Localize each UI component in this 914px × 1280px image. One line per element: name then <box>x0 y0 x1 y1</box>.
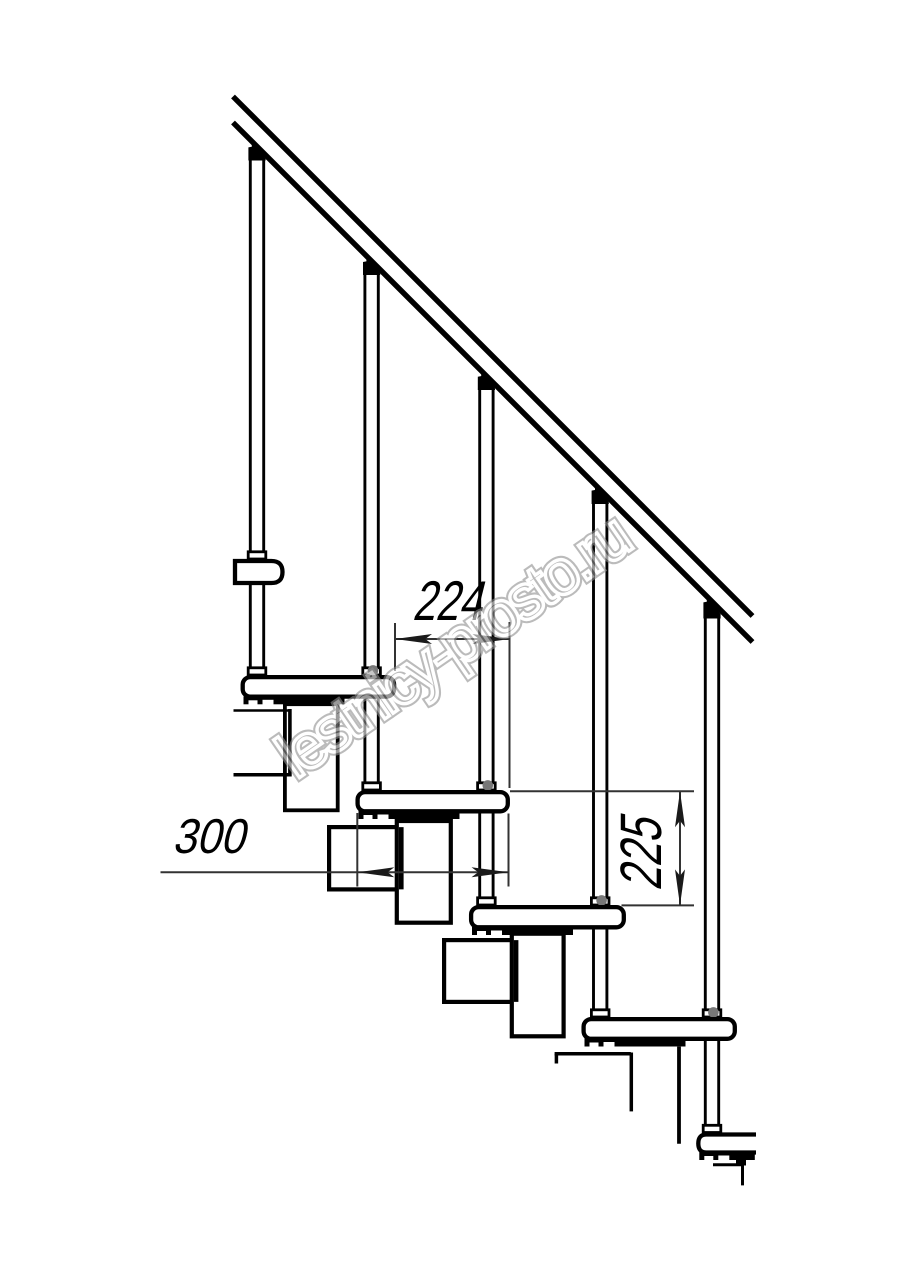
svg-text:lestnicy-prosto.ru: lestnicy-prosto.ru <box>264 502 641 792</box>
svg-text:225: 225 <box>609 807 674 894</box>
svg-text:300: 300 <box>169 808 255 863</box>
